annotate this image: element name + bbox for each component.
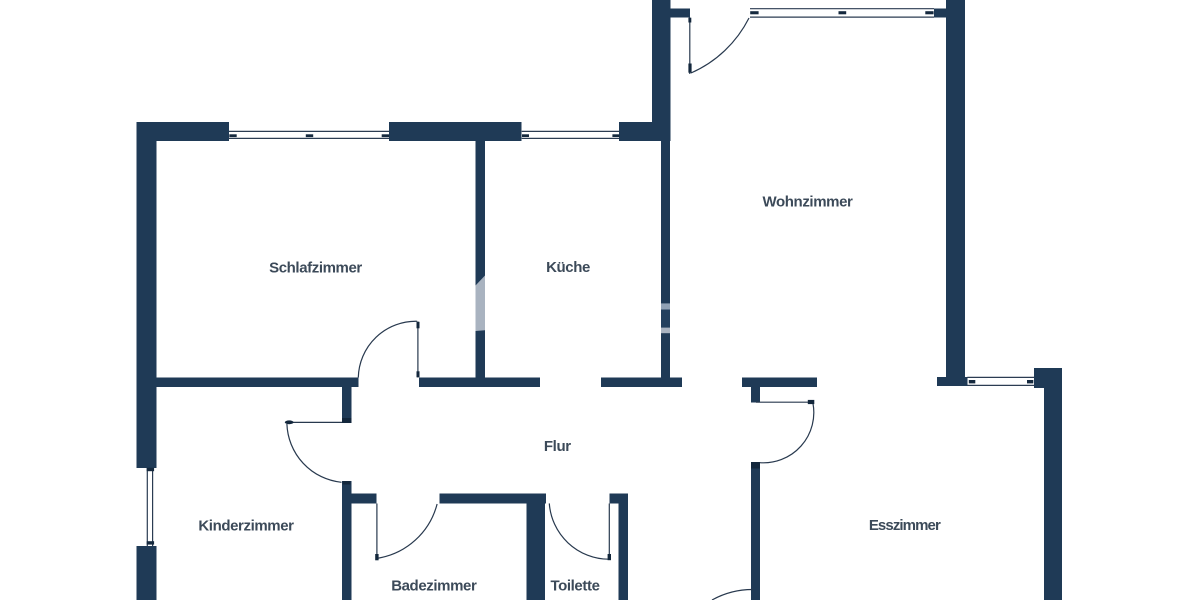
svg-text:Wohnzimmer: Wohnzimmer [763, 194, 853, 211]
svg-text:Esszimmer: Esszimmer [869, 517, 941, 534]
svg-text:Flur: Flur [544, 438, 571, 455]
svg-text:Küche: Küche [546, 259, 590, 276]
svg-text:Schlafzimmer: Schlafzimmer [269, 260, 362, 277]
svg-text:Badezimmer: Badezimmer [391, 578, 477, 595]
svg-text:Kinderzimmer: Kinderzimmer [198, 518, 294, 535]
svg-text:Toilette: Toilette [550, 578, 599, 595]
